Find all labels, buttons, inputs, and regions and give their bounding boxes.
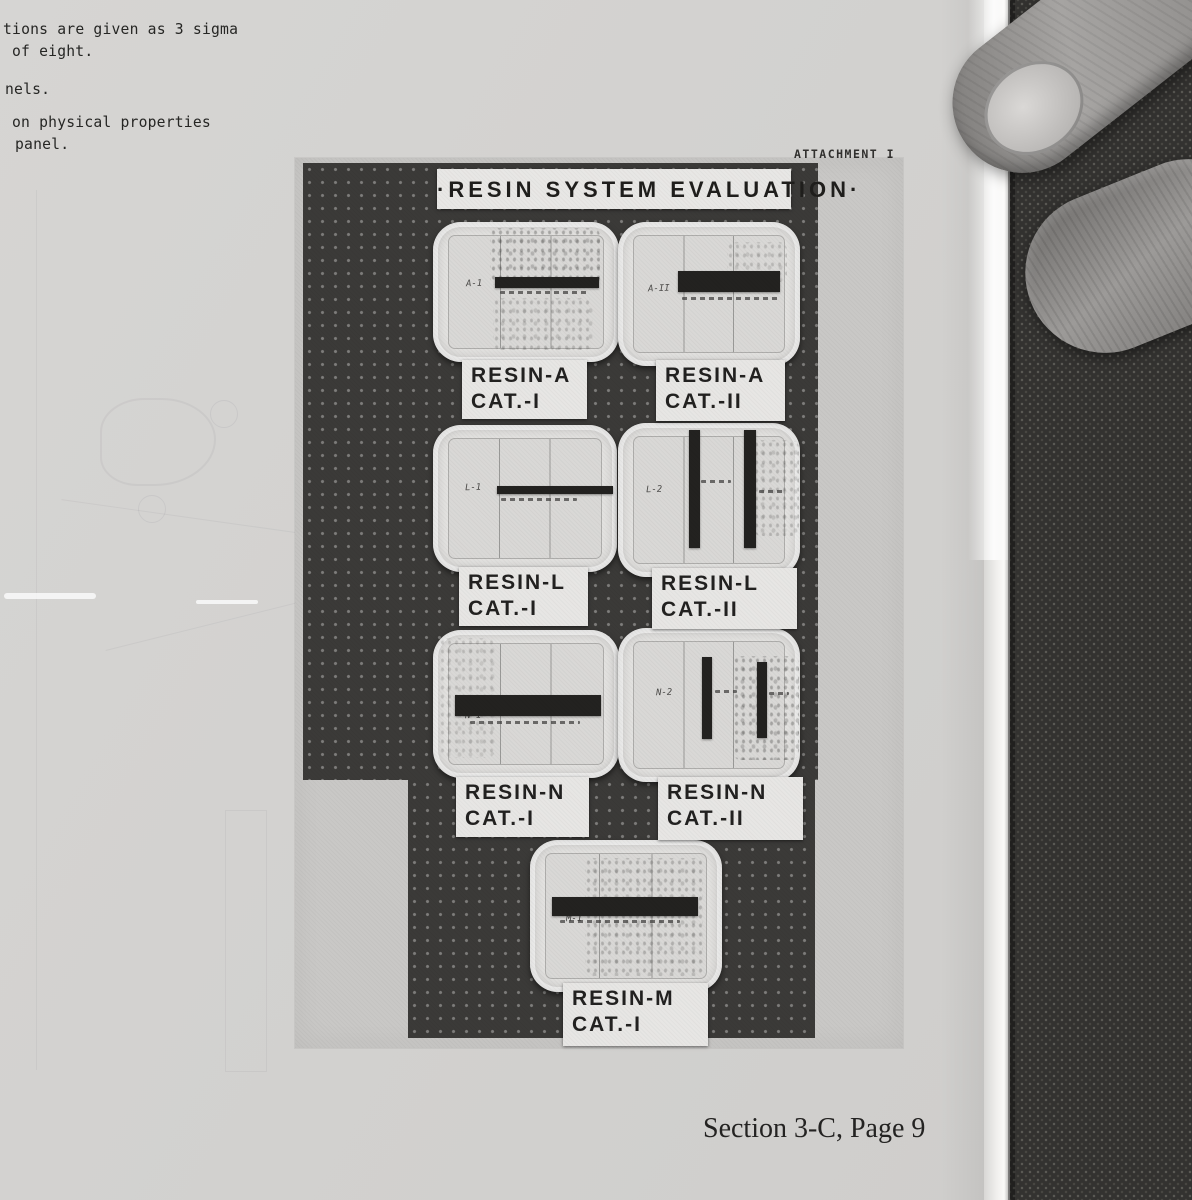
- panel-stain: [727, 242, 787, 282]
- specimen-bar-vertical: [689, 430, 700, 548]
- panel-stain: [490, 228, 600, 286]
- pegboard-background: [303, 163, 818, 780]
- label-line: CAT.-I: [572, 1012, 708, 1038]
- screenshot-root: tions are given as 3 sigma of eight. nel…: [0, 0, 1192, 1200]
- photo-title: ·RESIN SYSTEM EVALUATION·: [437, 169, 791, 209]
- label-line: RESIN-L: [661, 571, 797, 597]
- handwritten-note: [470, 721, 580, 724]
- handwritten-note: [715, 690, 737, 693]
- panel-resin-l-cat2: L-2: [618, 423, 800, 577]
- specimen-bar: [678, 271, 780, 292]
- handwritten-note: [501, 498, 577, 501]
- margin-text-line: of eight.: [12, 43, 93, 60]
- specimen-mark: L-2: [646, 485, 663, 496]
- label-line: CAT.-II: [665, 389, 785, 415]
- specimen-bar-vertical: [702, 657, 712, 739]
- panel-resin-l-cat1: L-1: [433, 425, 617, 572]
- margin-text-line: panel.: [15, 136, 69, 153]
- label-line: CAT.-I: [468, 596, 588, 622]
- page-footer: Section 3-C, Page 9: [703, 1113, 925, 1145]
- label-resin-n-cat1: RESIN-N CAT.-I: [456, 777, 589, 837]
- specimen-bar: [495, 277, 599, 288]
- specimen-bar-vertical: [744, 430, 756, 548]
- specimen-mark: N-1: [465, 711, 482, 722]
- page-edge-shadow: [1008, 0, 1015, 1200]
- panel-resin-m-cat1: M-1: [530, 840, 722, 992]
- label-resin-l-cat1: RESIN-L CAT.-I: [459, 567, 588, 626]
- specimen-bar: [552, 897, 698, 916]
- handwritten-note: [560, 920, 680, 923]
- handwritten-note: [759, 490, 783, 493]
- handwritten-note: [701, 480, 731, 483]
- specimen-bar: [497, 486, 613, 494]
- panel-resin-a-cat1: A-1: [433, 222, 619, 362]
- specimen-bar-vertical: [757, 662, 767, 738]
- label-line: RESIN-L: [468, 570, 588, 596]
- handwritten-note: [500, 291, 588, 294]
- panel-stain: [439, 638, 495, 758]
- panel-stain: [585, 858, 703, 976]
- handwritten-note: [682, 297, 778, 300]
- label-line: CAT.-I: [465, 806, 589, 832]
- panel-stain: [493, 298, 593, 350]
- label-resin-l-cat2: RESIN-L CAT.-II: [652, 568, 797, 629]
- panel-stain: [733, 656, 799, 760]
- label-line: RESIN-M: [572, 986, 708, 1012]
- panel-stain: [753, 440, 799, 536]
- label-line: RESIN-N: [465, 780, 589, 806]
- margin-text-line: nels.: [5, 81, 50, 98]
- label-resin-a-cat1: RESIN-A CAT.-I: [462, 360, 587, 419]
- label-line: CAT.-II: [667, 806, 803, 832]
- label-resin-a-cat2: RESIN-A CAT.-II: [656, 360, 785, 421]
- pegboard-background-bottom: [408, 778, 815, 1038]
- specimen-mark: A-II: [648, 284, 670, 295]
- specimen-bar: [455, 695, 601, 716]
- specimen-mark: A-1: [466, 279, 483, 290]
- label-line: RESIN-N: [667, 780, 803, 806]
- label-line: RESIN-A: [665, 363, 785, 389]
- label-line: CAT.-I: [471, 389, 587, 415]
- resin-evaluation-photo: ·RESIN SYSTEM EVALUATION· A-1 A-II L-1 L…: [295, 158, 903, 1048]
- panel-resin-a-cat2: A-II: [618, 222, 800, 366]
- handwritten-note: [769, 692, 789, 695]
- label-line: CAT.-II: [661, 597, 797, 623]
- margin-text-line: on physical properties: [12, 114, 211, 131]
- specimen-mark: L-1: [465, 483, 482, 494]
- label-resin-m-cat1: RESIN-M CAT.-I: [563, 983, 708, 1046]
- panel-resin-n-cat1: N-1: [433, 630, 619, 778]
- margin-text-line: tions are given as 3 sigma: [3, 21, 238, 38]
- specimen-mark: N-2: [656, 688, 673, 699]
- label-line: RESIN-A: [471, 363, 587, 389]
- label-resin-n-cat2: RESIN-N CAT.-II: [658, 777, 803, 840]
- specimen-mark: M-1: [566, 914, 583, 925]
- panel-resin-n-cat2: N-2: [618, 628, 800, 782]
